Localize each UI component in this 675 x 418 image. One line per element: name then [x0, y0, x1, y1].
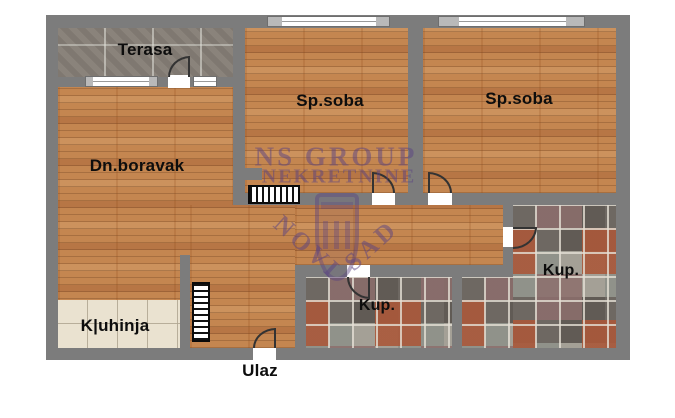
wall-terrace-east — [233, 15, 245, 205]
room-label-sp-soba-2: Sp.soba — [485, 89, 553, 109]
room-label-kuhinja: K|uhinja — [81, 316, 150, 336]
window-cap — [376, 17, 389, 26]
bedroom-2-floor — [423, 28, 616, 193]
window-cap — [86, 77, 93, 86]
window-cap — [566, 17, 584, 26]
entrance-door-sill — [253, 348, 276, 360]
watermark-brand-line2: NEKRETNINE — [262, 166, 416, 189]
wall-bathroom-1-west — [295, 265, 306, 348]
window-cap — [268, 17, 282, 26]
wall-right — [616, 15, 630, 360]
window-cap — [439, 17, 459, 26]
room-label-terasa: Terasa — [118, 40, 173, 60]
window-icon — [267, 16, 390, 27]
room-label-kup-2: Kup. — [543, 262, 579, 280]
bedroom-2-door-sill — [428, 193, 452, 205]
bathroom-2-door-sill — [503, 227, 513, 247]
room-label-sp-soba-1: Sp.soba — [296, 91, 364, 111]
wall-left — [46, 15, 58, 360]
radiator-icon — [192, 282, 210, 342]
room-label-dn-boravak: Dn.boravak — [90, 156, 185, 176]
room-label-ulaz: Ulaz — [242, 361, 278, 381]
window-icon — [193, 76, 217, 87]
window-icon — [85, 76, 158, 87]
wall-kitchen-east — [180, 255, 190, 360]
bedroom-1-door-sill — [372, 193, 395, 205]
window-cap — [149, 77, 157, 86]
bathroom-2-floor-extension — [462, 277, 513, 348]
wall-between-bathrooms — [452, 277, 462, 348]
wall-bottom — [46, 348, 630, 360]
room-label-kup-1: Kup. — [359, 297, 395, 315]
window-icon — [438, 16, 585, 27]
floor-plan: Terasa Sp.soba Sp.soba Dn.boravak K|uhin… — [0, 0, 675, 418]
